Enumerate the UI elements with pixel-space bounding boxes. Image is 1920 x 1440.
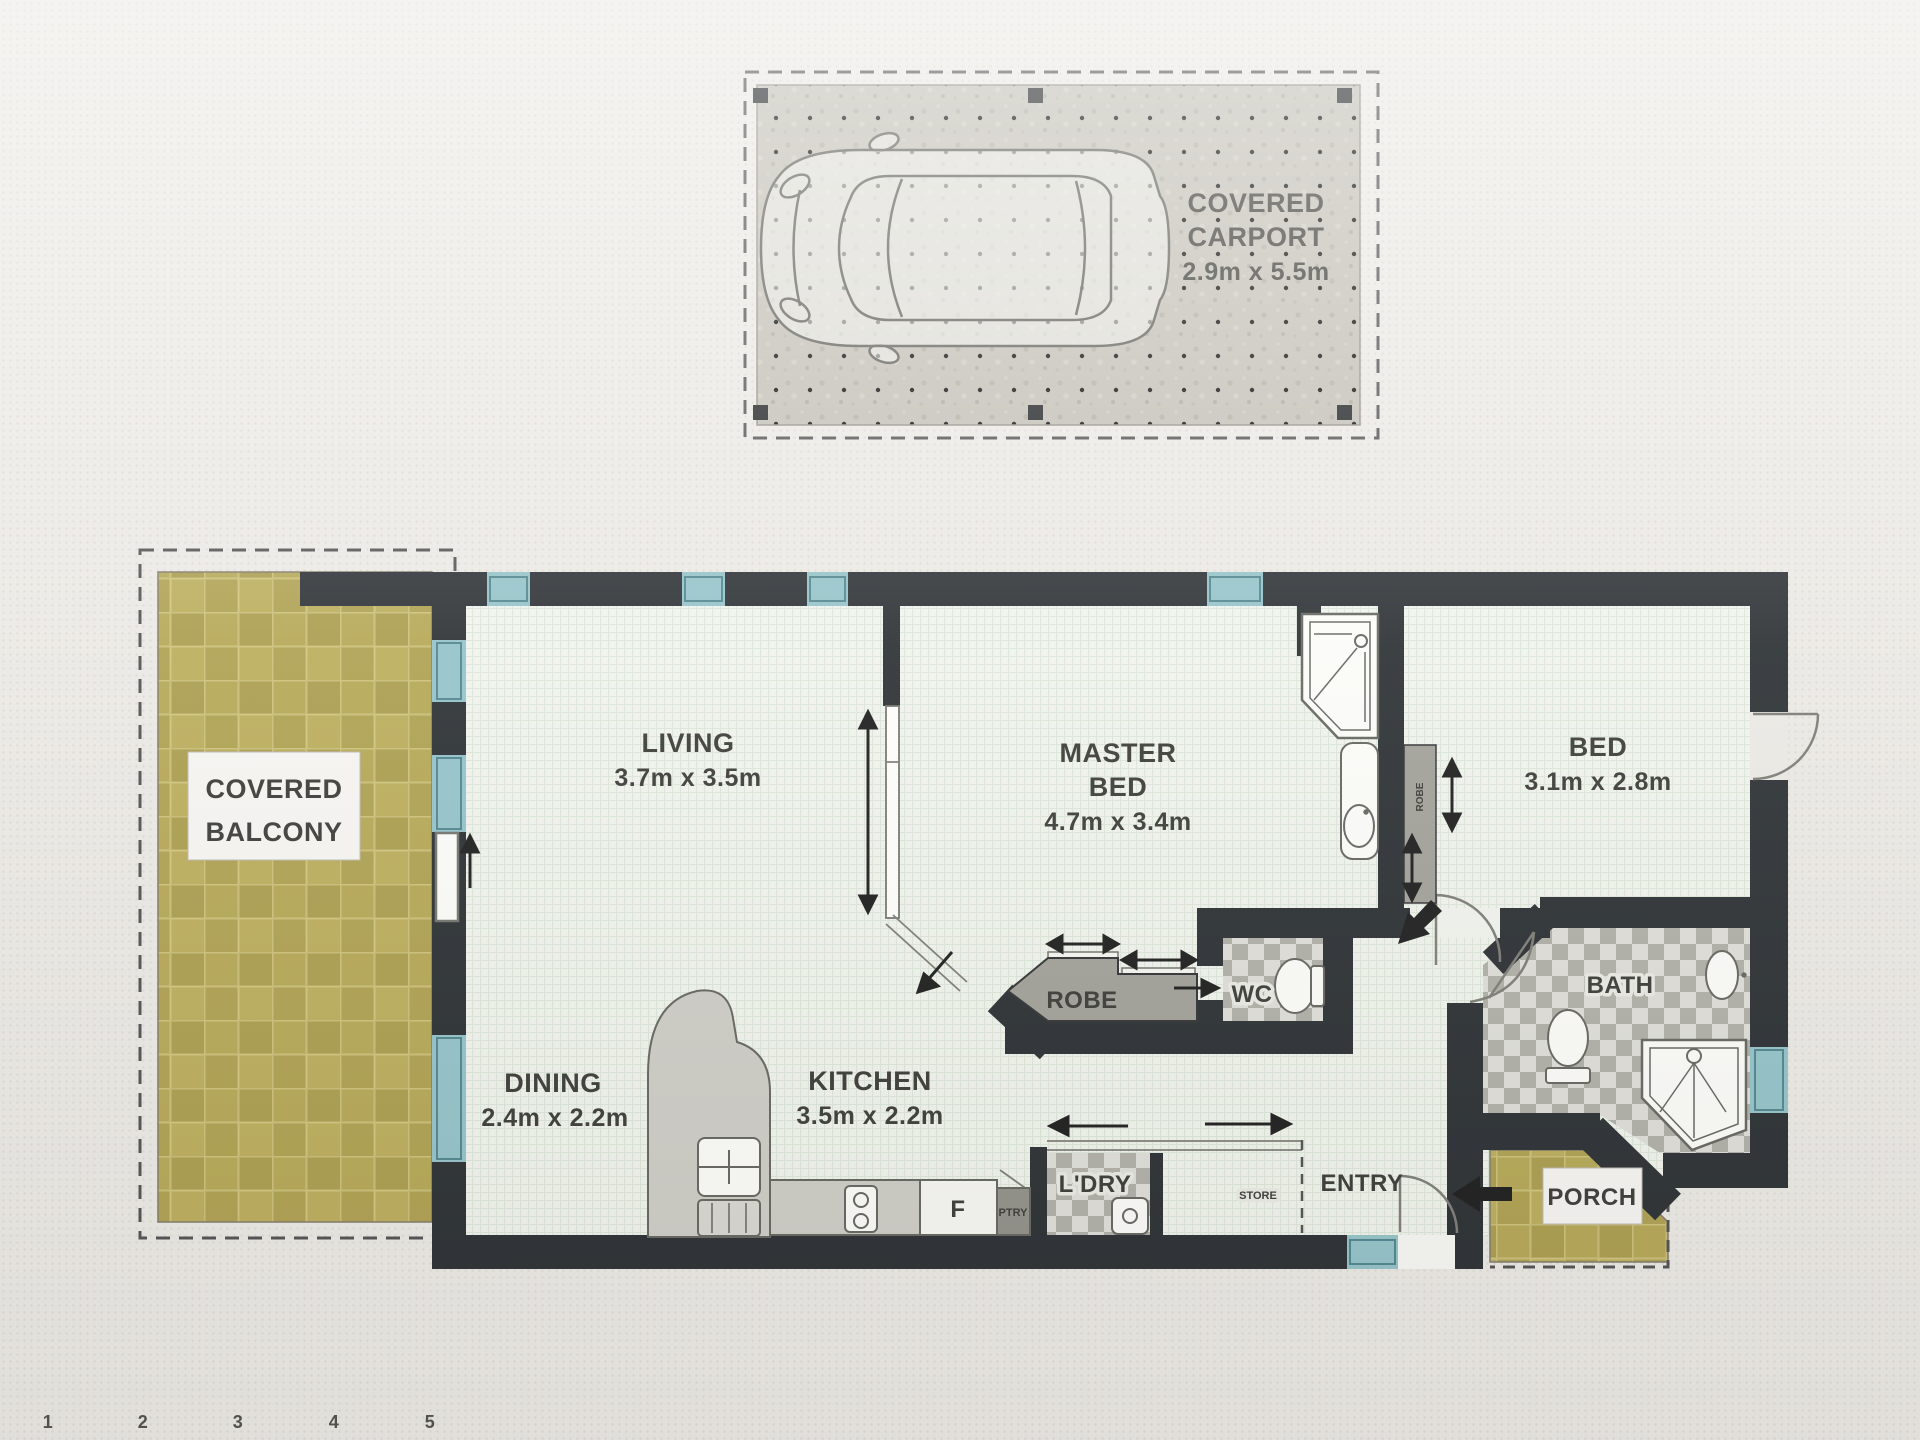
window-top-2 <box>682 572 725 606</box>
floor-plan-page: COVERED CARPORT 2.9m x 5.5m <box>0 0 1920 1440</box>
porch-label: PORCH <box>1547 1184 1636 1211</box>
window-master <box>1207 572 1263 606</box>
store-label: STORE <box>1239 1190 1277 1202</box>
dining-label: DINING <box>504 1068 602 1098</box>
balcony-tiles <box>158 572 432 1222</box>
bath-label: BATH <box>1587 972 1654 999</box>
ensuite-vanity <box>1341 743 1378 859</box>
dining-dims: 2.4m x 2.2m <box>481 1104 628 1132</box>
window-entry <box>1347 1235 1398 1269</box>
bed-label: BED <box>1569 732 1628 762</box>
laundry-tub <box>1112 1198 1148 1234</box>
window-top-3 <box>807 572 848 606</box>
master-bed-label-line2: BED <box>1089 772 1148 802</box>
floor-plan-drawing: COVERED CARPORT 2.9m x 5.5m <box>0 0 1920 1440</box>
kitchen-label: KITCHEN <box>808 1066 932 1096</box>
carport-label: COVERED CARPORT 2.9m x 5.5m <box>1182 188 1329 286</box>
wc-toilet <box>1275 959 1315 1013</box>
window-left-3 <box>432 1035 466 1162</box>
living-label: LIVING <box>641 728 734 758</box>
scale-mark-1: 1 <box>43 1412 54 1432</box>
entry-label: ENTRY <box>1321 1170 1404 1197</box>
window-top-1 <box>487 572 530 606</box>
laundry-label: L'DRY <box>1059 1171 1132 1198</box>
carport-label-line2: CARPORT <box>1188 222 1325 252</box>
pantry-label: PTRY <box>999 1207 1029 1219</box>
window-left-2 <box>432 755 466 832</box>
covered-balcony <box>140 550 455 1238</box>
car-illustration <box>761 130 1169 366</box>
living-dims: 3.7m x 3.5m <box>614 764 761 792</box>
bed-dims: 3.1m x 2.8m <box>1524 768 1671 796</box>
balcony-label-line1: COVERED <box>205 774 342 804</box>
balcony-door-leaf <box>436 833 458 921</box>
window-left-1 <box>432 640 466 702</box>
scale-mark-3: 3 <box>233 1412 244 1432</box>
bath-basin <box>1706 951 1738 999</box>
scale-mark-5: 5 <box>425 1412 436 1432</box>
scale-mark-2: 2 <box>138 1412 149 1432</box>
master-bed-label-line1: MASTER <box>1060 738 1177 768</box>
carport-label-line1: COVERED <box>1187 188 1324 218</box>
master-bed-dims: 4.7m x 3.4m <box>1044 808 1191 836</box>
fridge-label: F <box>950 1196 965 1223</box>
bed-robe-area <box>1404 745 1436 903</box>
bed-robe-label: ROBE <box>1415 782 1426 811</box>
carport: COVERED CARPORT 2.9m x 5.5m <box>745 72 1378 438</box>
window-bath <box>1750 1047 1788 1113</box>
bath-toilet <box>1548 1010 1588 1066</box>
kitchen-dims: 3.5m x 2.2m <box>796 1102 943 1130</box>
robe-label: ROBE <box>1046 987 1117 1014</box>
wc-label: WC <box>1232 981 1273 1008</box>
balcony-label-line2: BALCONY <box>206 817 343 847</box>
carport-dims: 2.9m x 5.5m <box>1182 258 1329 286</box>
scale-mark-4: 4 <box>329 1412 340 1432</box>
center-slider-track <box>886 706 899 918</box>
